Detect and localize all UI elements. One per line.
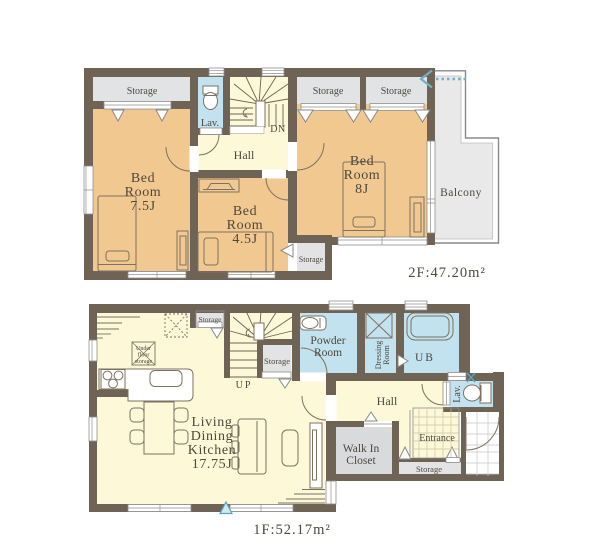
svg-text:Dining: Dining	[191, 429, 234, 444]
svg-text:7.5J: 7.5J	[130, 199, 155, 214]
svg-text:2F:47.20m²: 2F:47.20m²	[408, 265, 486, 281]
svg-text:8J: 8J	[355, 182, 369, 197]
svg-text:Storage: Storage	[127, 86, 158, 97]
svg-text:Storage: Storage	[199, 315, 223, 324]
svg-text:Room: Room	[125, 185, 162, 200]
svg-text:Living: Living	[192, 415, 233, 430]
svg-text:storage: storage	[135, 359, 153, 365]
svg-text:Lav.: Lav.	[452, 385, 463, 402]
svg-text:Storage: Storage	[313, 86, 344, 97]
svg-text:Bed: Bed	[350, 154, 374, 169]
svg-text:Storage: Storage	[264, 356, 290, 366]
svg-text:17.75J: 17.75J	[192, 457, 233, 472]
svg-text:Kitchen: Kitchen	[188, 443, 237, 458]
svg-text:Closet: Closet	[346, 455, 376, 467]
svg-text:DN: DN	[270, 124, 285, 135]
svg-text:Entrance: Entrance	[419, 433, 455, 444]
svg-text:Powder: Powder	[310, 335, 345, 347]
svg-text:Storage: Storage	[416, 464, 442, 474]
svg-text:UB: UB	[415, 352, 435, 364]
svg-text:Bed: Bed	[131, 171, 155, 186]
svg-text:Hall: Hall	[234, 148, 255, 162]
svg-text:Under: Under	[136, 346, 151, 352]
svg-text:UP: UP	[236, 380, 253, 391]
svg-text:Room: Room	[227, 218, 264, 233]
svg-text:Storage: Storage	[299, 255, 324, 264]
svg-text:1F:52.17m²: 1F:52.17m²	[253, 522, 331, 538]
svg-text:Walk In: Walk In	[343, 443, 380, 455]
svg-text:Room: Room	[314, 347, 342, 359]
svg-text:Room: Room	[382, 344, 391, 364]
svg-text:4.5J: 4.5J	[232, 232, 257, 247]
svg-text:floor: floor	[138, 352, 150, 359]
svg-text:Balcony: Balcony	[440, 187, 482, 199]
svg-text:Storage: Storage	[381, 86, 412, 97]
svg-text:Lav.: Lav.	[201, 118, 219, 129]
svg-text:Room: Room	[344, 168, 381, 183]
svg-text:Hall: Hall	[377, 394, 398, 408]
svg-text:Bed: Bed	[233, 204, 257, 219]
